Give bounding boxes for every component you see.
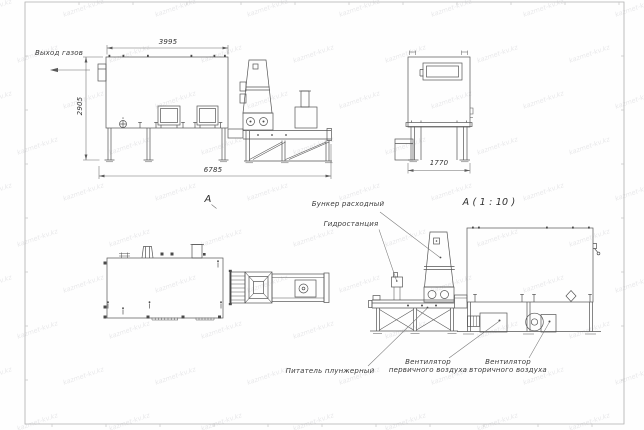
view-label-a: А [204, 194, 211, 205]
callout-hopper: Бункер расходный [312, 200, 384, 208]
view-label-a-scale: А ( 1 : 10 ) [463, 197, 516, 208]
dimension-top-width: 3995 [159, 38, 178, 46]
callout-gas-outlet: Выход газов [35, 49, 83, 57]
callout-fan-secondary: Вентилятор вторичного воздуха [469, 359, 547, 374]
view-front [395, 51, 473, 162]
view-plan-bolts [104, 253, 232, 319]
drawing-sheet: kazmet-kv.kzkazmet-kv.kzkazmet-kv.kzkazm… [0, 0, 644, 430]
view-plan [107, 245, 329, 321]
dimension-left-height: 2905 [76, 97, 84, 116]
callout-fan-secondary-line2: вторичного воздуха [469, 367, 547, 375]
callout-leaders [368, 212, 550, 366]
callout-feeder: Питатель плунжерный [286, 367, 375, 375]
dimension-arrows [50, 47, 470, 178]
callout-fan-primary-line2: первичного воздуха [389, 367, 467, 375]
dimension-front-width: 1770 [430, 159, 449, 167]
view-side-main [98, 57, 333, 163]
callout-fan-primary: Вентилятор первичного воздуха [389, 359, 467, 374]
drawing-linework [0, 0, 644, 430]
dimension-bottom-width: 6785 [204, 166, 223, 174]
view-side-opposite [369, 228, 602, 334]
callout-hydraulic-station: Гидростанция [324, 220, 379, 228]
